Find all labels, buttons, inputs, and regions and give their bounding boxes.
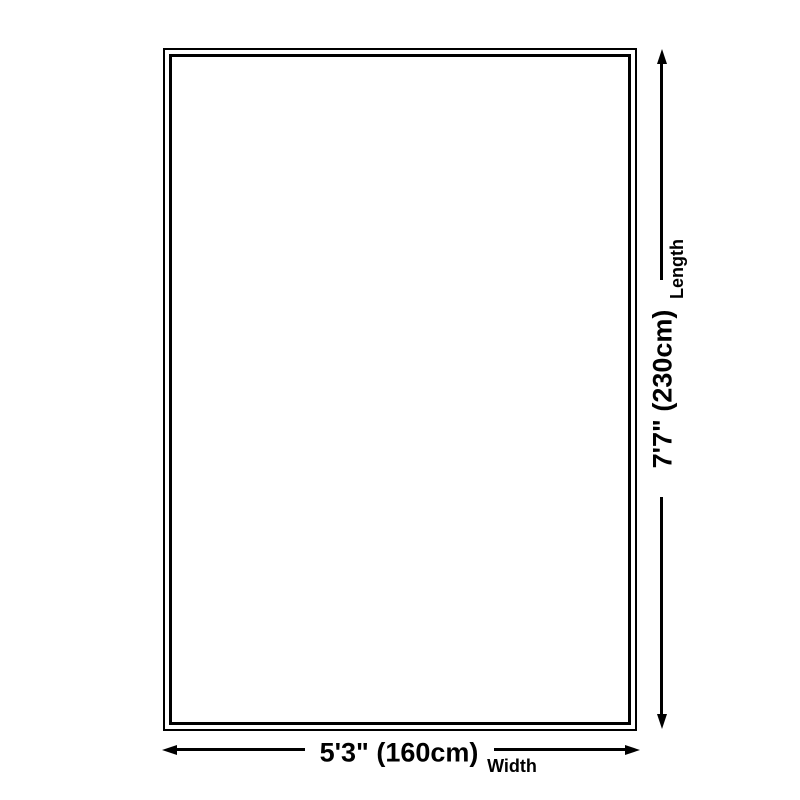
length-value: 7'7" (230cm): [650, 310, 677, 469]
width-arrow-line-left: [175, 748, 305, 751]
product-outline-inner: [169, 54, 631, 725]
arrow-down-icon: [657, 714, 667, 729]
dimension-diagram: Length 7'7" (230cm) 5'3" (160cm) Width: [0, 0, 800, 800]
length-arrow-line-top: [660, 60, 663, 280]
length-label: Length: [668, 239, 686, 299]
length-arrow-line-bottom: [660, 497, 663, 716]
width-label: Width: [487, 757, 537, 775]
width-value: 5'3" (160cm): [320, 740, 479, 767]
product-outline-outer: [163, 48, 637, 731]
width-arrow-line-right: [494, 748, 626, 751]
arrow-right-icon: [625, 745, 640, 755]
